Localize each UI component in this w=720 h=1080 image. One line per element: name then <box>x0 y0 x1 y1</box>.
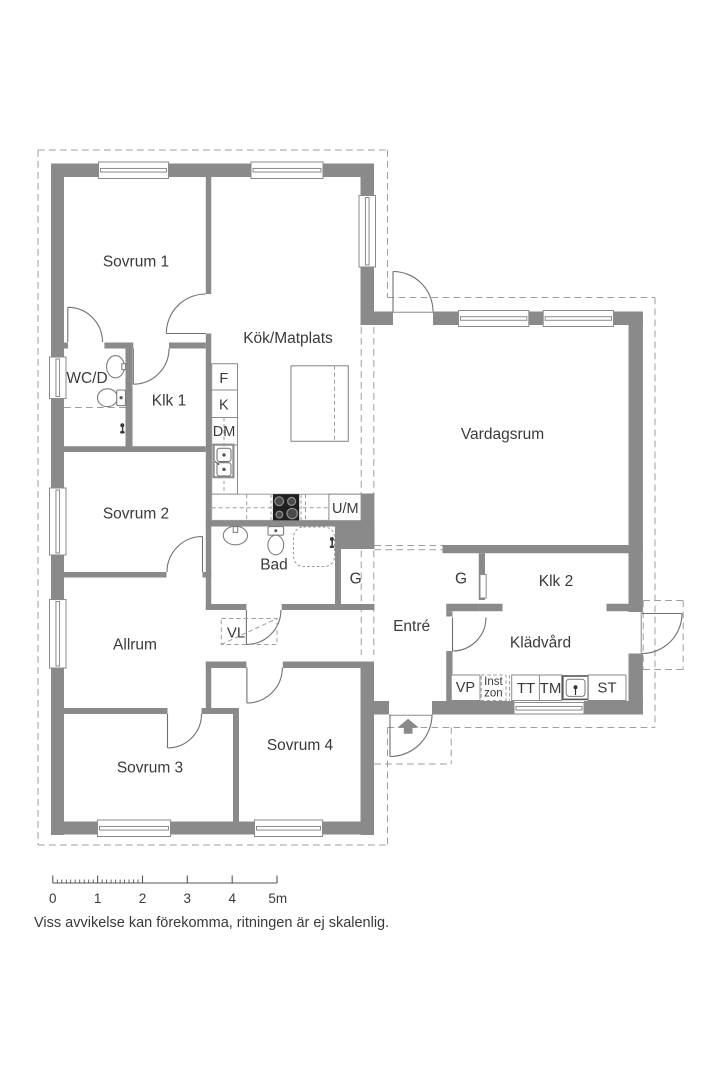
svg-text:K: K <box>219 398 229 414</box>
svg-text:DM: DM <box>213 424 236 440</box>
svg-text:Klk 2: Klk 2 <box>539 573 573 590</box>
svg-text:G: G <box>350 570 362 587</box>
svg-text:TT: TT <box>517 680 535 697</box>
svg-text:Vardagsrum: Vardagsrum <box>461 426 544 443</box>
svg-text:G: G <box>455 570 467 587</box>
svg-text:3: 3 <box>184 891 192 906</box>
svg-text:zon: zon <box>484 688 503 700</box>
svg-text:VL: VL <box>227 625 245 642</box>
svg-text:4: 4 <box>228 891 236 906</box>
svg-text:Klädvård: Klädvård <box>510 635 571 652</box>
svg-text:Viss avvikelse kan förekomma,: Viss avvikelse kan förekomma, ritningen … <box>34 915 389 931</box>
svg-text:0: 0 <box>49 891 57 906</box>
svg-text:Sovrum 4: Sovrum 4 <box>267 737 334 754</box>
svg-text:Sovrum 1: Sovrum 1 <box>103 254 169 271</box>
svg-text:WC/D: WC/D <box>66 370 107 387</box>
svg-text:Inst: Inst <box>484 676 503 688</box>
svg-text:2: 2 <box>139 891 147 906</box>
svg-text:Klk 1: Klk 1 <box>152 393 186 410</box>
svg-text:F: F <box>219 371 228 387</box>
svg-text:TM: TM <box>540 680 562 697</box>
svg-text:1: 1 <box>94 891 102 906</box>
svg-text:Kök/Matplats: Kök/Matplats <box>243 330 333 347</box>
svg-text:Allrum: Allrum <box>113 636 157 653</box>
svg-text:5m: 5m <box>268 891 287 906</box>
svg-text:Bad: Bad <box>260 557 288 574</box>
svg-text:Entré: Entré <box>393 618 430 635</box>
svg-text:ST: ST <box>597 680 616 697</box>
svg-text:U/M: U/M <box>332 501 359 517</box>
svg-text:Sovrum 3: Sovrum 3 <box>117 760 183 777</box>
svg-text:Sovrum 2: Sovrum 2 <box>103 506 169 523</box>
svg-text:VP: VP <box>456 680 475 696</box>
